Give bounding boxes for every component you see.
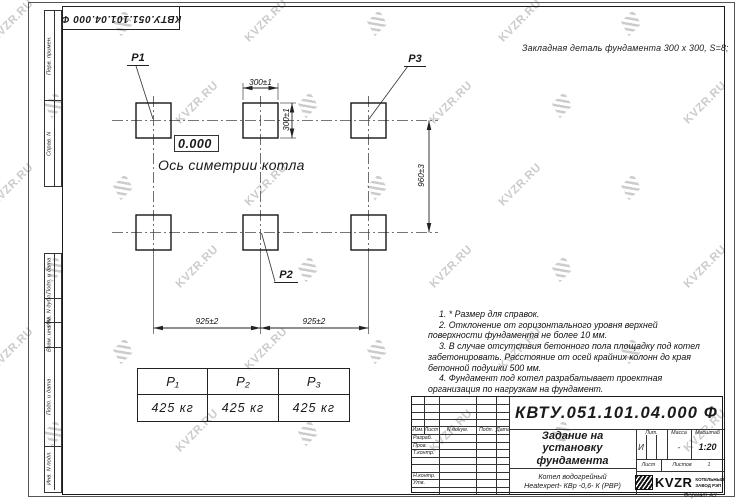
tb-header-list: Лист <box>424 427 439 433</box>
tb-header-ndocum: N докум. <box>439 427 476 433</box>
sidebar-divider <box>54 101 55 186</box>
sidebar-label: Инв. N подл. <box>45 447 54 490</box>
tb-row-razrab: Разраб. <box>413 435 432 441</box>
tb-row-nkontr: Н.контр. <box>413 473 435 479</box>
note-1: 1. * Размер для справок. <box>428 309 700 320</box>
dim-925-left: 925±2 <box>185 317 229 326</box>
drawing-sheet: KVZR.RUKVZR.RUKVZR.RUKVZR.RUKVZR.RUKVZR.… <box>0 0 750 500</box>
dim-300-side: 300±1 <box>282 102 291 137</box>
load-table-value: 425 кг <box>279 395 349 421</box>
dim-960: 960±3 <box>417 158 426 193</box>
sidebar-divider <box>54 299 55 322</box>
note-2: 2. Отклонение от горизонтального уровня … <box>428 320 700 341</box>
title-block: Изм. Лист N докум. Подп. Дата Разраб. Пр… <box>411 396 723 493</box>
sidebar-divider <box>54 447 55 490</box>
tb-lit-value: И <box>636 435 646 459</box>
format-label: Формат А3 <box>655 493 745 499</box>
sidebar-cell: Подп. и дата <box>45 348 61 447</box>
sidebar-top-box: Перв. примен. Справ. N <box>44 10 62 187</box>
dim-925-right: 925±2 <box>292 317 336 326</box>
plate-label-p3: P3 <box>404 53 426 67</box>
dim-300-top: 300±1 <box>245 78 276 87</box>
sidebar-divider <box>54 323 55 347</box>
tb-scale-value: 1:20 <box>691 435 724 459</box>
tb-row-tkontr: Т.контр. <box>413 450 434 456</box>
kvzr-logo-subtitle: КОТЕЛЬНЫЙ ЗАВОД РЭП <box>695 477 724 488</box>
tb-sheets-value: 1 <box>700 462 718 468</box>
tb-row-prov: Пров. <box>413 443 427 449</box>
sidebar-cell: Подп. и дата <box>45 254 61 299</box>
load-table-value: 425 кг <box>208 395 278 421</box>
sidebar-cell: Инв. N подл. <box>45 447 61 490</box>
load-table-header: P₂ <box>208 369 278 395</box>
tb-doc-number: КВТУ.051.101.04.000 Ф <box>509 397 724 429</box>
doc-number-text: КВТУ.051.101.04.000 Ф <box>61 13 181 24</box>
load-table-header: P₁ <box>138 369 208 395</box>
plate-label-p2: P2 <box>274 269 298 283</box>
tb-product-line: Котел водогрейный <box>538 472 606 481</box>
doc-number-stamp-rotated: КВТУ.051.101.04.000 Ф <box>62 6 180 30</box>
load-table-header: P₃ <box>279 369 349 395</box>
tb-header-podp: Подп. <box>476 427 496 433</box>
note-4: 4. Фундамент под котел разрабатывает про… <box>428 373 700 394</box>
kvzr-logo-icon <box>636 476 652 489</box>
sidebar-cell: Перв. примен. <box>45 11 61 101</box>
tb-document-title: Задание на установку фундамента <box>509 429 636 468</box>
sidebar-label: Справ. N <box>45 101 54 186</box>
sidebar-cell: Справ. N <box>45 101 61 186</box>
tb-product-name: Котел водогрейный Heatexpert- КВр -0,6- … <box>509 468 636 494</box>
sidebar-divider <box>54 254 55 298</box>
boiler-symmetry-axis-label: Ось симетрии котла <box>158 157 305 173</box>
tb-title-line: установку <box>543 442 603 455</box>
tb-header-data: Дата <box>496 427 509 433</box>
sidebar-label: Подп. и дата <box>45 254 54 298</box>
embed-detail-note: Закладная деталь фундамента 300 x 300, S… <box>522 43 729 53</box>
sidebar-bottom-box: Подп. и дата Инв. N дубл. Взам. инв. N П… <box>44 253 62 493</box>
load-table-value: 425 кг <box>138 395 208 421</box>
tb-header-izm: Изм. <box>412 427 424 433</box>
kvzr-logo-text: KVZR <box>655 475 692 490</box>
sidebar-label: Взам. инв. N <box>45 323 54 347</box>
note-3: 3. В случае отсутствия бетонного пола пл… <box>428 341 700 373</box>
notes-block: 1. * Размер для справок. 2. Отклонение о… <box>428 309 700 395</box>
sidebar-label: Подп. и дата <box>45 348 54 446</box>
sidebar-label: Перв. примен. <box>45 11 54 100</box>
tb-title-line: фундамента <box>537 455 609 468</box>
load-table: P₁ P₂ P₃ 425 кг 425 кг 425 кг <box>137 368 350 422</box>
tb-sheets-label: Листов <box>664 462 700 468</box>
sidebar-divider <box>54 348 55 446</box>
tb-product-line: Heatexpert- КВр -0,6- К (РВР) <box>524 481 621 490</box>
sidebar-cell: Взам. инв. N <box>45 323 61 348</box>
tb-row-utv: Утв. <box>413 480 425 486</box>
plate-label-p1: P1 <box>127 52 149 66</box>
tb-sheet-label: Лист <box>636 462 661 468</box>
elevation-mark: 0.000 <box>174 135 219 152</box>
sidebar-divider <box>54 11 55 100</box>
tb-mass-value: - <box>667 435 691 459</box>
tb-logo-cell: KVZR КОТЕЛЬНЫЙ ЗАВОД РЭП <box>636 471 724 494</box>
tb-title-line: Задание на <box>542 430 603 443</box>
